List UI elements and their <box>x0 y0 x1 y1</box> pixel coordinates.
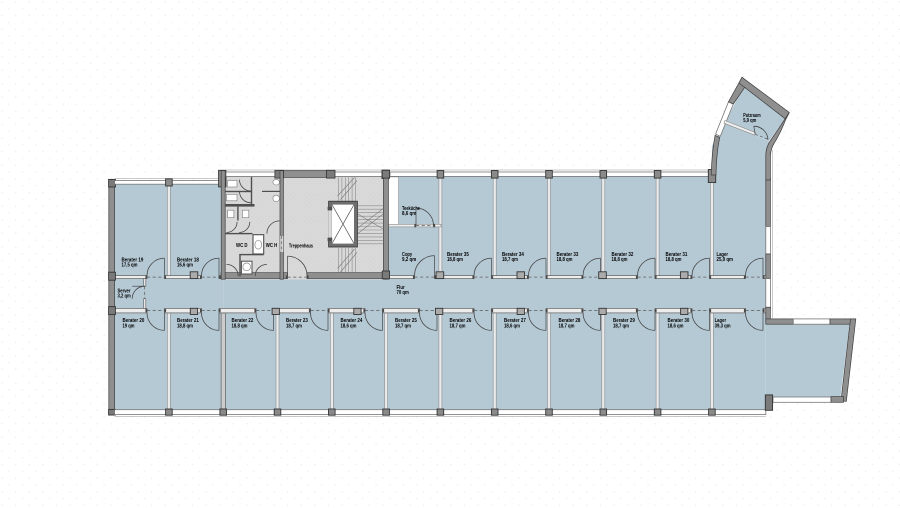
svg-text:9,2 qm: 9,2 qm <box>402 257 416 263</box>
svg-text:18,8 qm: 18,8 qm <box>447 257 463 263</box>
svg-text:18,8 qm: 18,8 qm <box>557 257 573 263</box>
svg-text:8,6 qm: 8,6 qm <box>402 211 416 217</box>
svg-text:25,9 qm: 25,9 qm <box>717 257 734 263</box>
svg-text:3,2 qm: 3,2 qm <box>118 294 132 300</box>
svg-text:18,7 qm: 18,7 qm <box>502 257 518 263</box>
svg-text:18,7 qm: 18,7 qm <box>286 323 302 329</box>
svg-text:19 qm: 19 qm <box>123 323 135 329</box>
svg-text:18,6 qm: 18,6 qm <box>504 323 520 329</box>
svg-text:18,8 qm: 18,8 qm <box>232 323 248 329</box>
svg-text:18,8 qm: 18,8 qm <box>177 323 193 329</box>
svg-text:18,6 qm: 18,6 qm <box>668 323 684 329</box>
svg-text:17,5 qm: 17,5 qm <box>122 263 138 269</box>
svg-text:Treppenhaus: Treppenhaus <box>289 243 313 249</box>
svg-text:16,6 qm: 16,6 qm <box>177 263 193 269</box>
svg-text:WC H: WC H <box>266 243 278 249</box>
svg-text:18,7 qm: 18,7 qm <box>559 323 575 329</box>
svg-text:39,3 qm: 39,3 qm <box>715 323 731 329</box>
svg-text:18,6 qm: 18,6 qm <box>341 323 357 329</box>
svg-text:18,8 qm: 18,8 qm <box>666 257 682 263</box>
svg-text:18,7 qm: 18,7 qm <box>613 323 629 329</box>
svg-text:WC D: WC D <box>236 243 248 249</box>
svg-text:70 qm: 70 qm <box>397 290 410 296</box>
svg-text:18,7 qm: 18,7 qm <box>450 323 466 329</box>
svg-text:18,7 qm: 18,7 qm <box>395 323 411 329</box>
svg-text:5,9 qm: 5,9 qm <box>743 118 757 124</box>
svg-text:18,8 qm: 18,8 qm <box>612 257 628 263</box>
